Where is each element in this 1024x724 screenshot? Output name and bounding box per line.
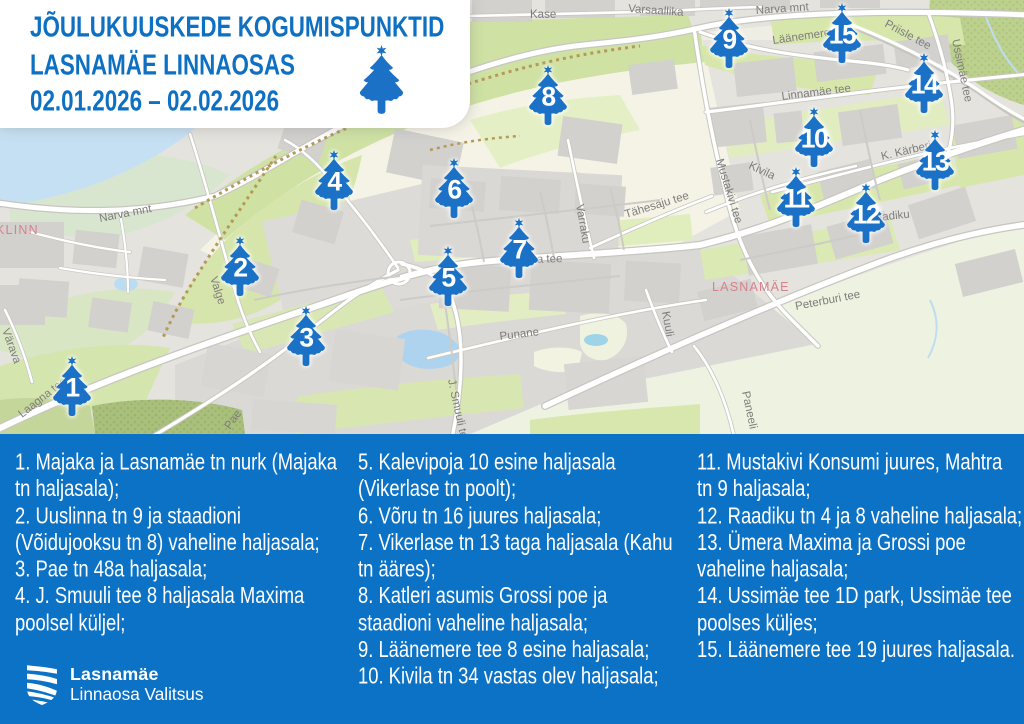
svg-text:Kase: Kase <box>530 9 556 21</box>
svg-text:3: 3 <box>299 323 313 353</box>
svg-text:4: 4 <box>327 167 342 197</box>
svg-text:1: 1 <box>65 373 79 403</box>
svg-text:14: 14 <box>911 70 939 100</box>
svg-text:13: 13 <box>922 147 949 177</box>
svg-text:9: 9 <box>722 25 736 55</box>
svg-text:2: 2 <box>233 253 247 283</box>
svg-text:12: 12 <box>853 200 880 230</box>
svg-text:6: 6 <box>447 175 461 205</box>
svg-text:KLINN: KLINN <box>0 223 39 237</box>
svg-text:15: 15 <box>829 20 856 50</box>
svg-text:8: 8 <box>541 82 555 112</box>
svg-text:LASNAMÄE: LASNAMÄE <box>712 280 790 294</box>
svg-text:10: 10 <box>801 124 828 154</box>
svg-text:7: 7 <box>512 235 526 265</box>
svg-text:11: 11 <box>783 184 809 214</box>
svg-text:5: 5 <box>441 263 455 293</box>
